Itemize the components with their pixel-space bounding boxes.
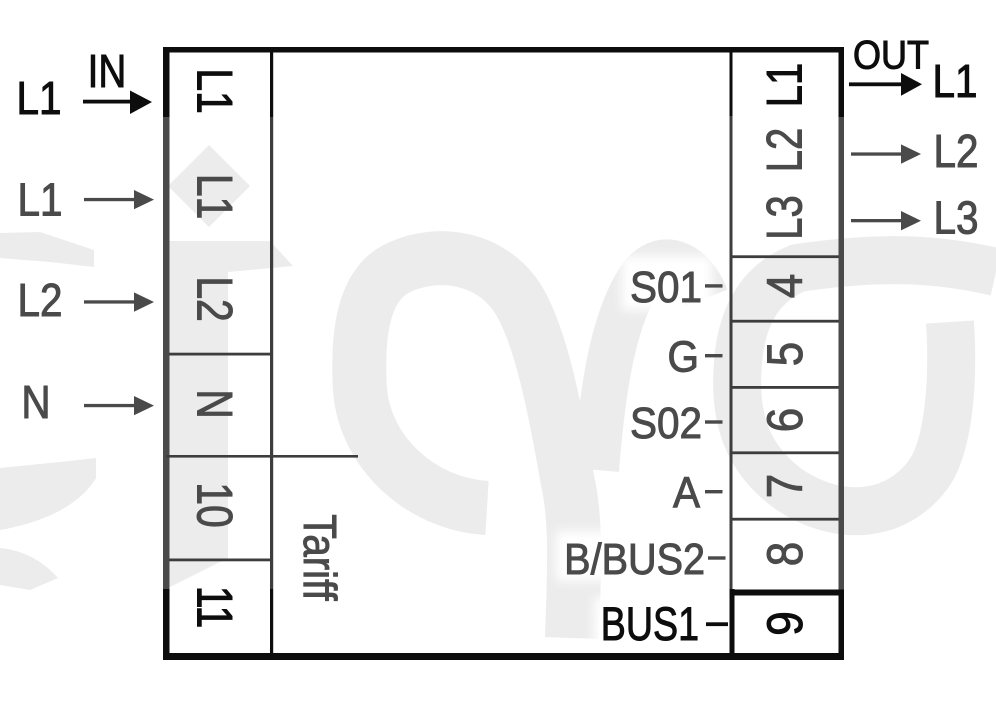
svg-text:A: A: [673, 468, 701, 517]
svg-text:S02: S02: [630, 398, 702, 447]
svg-text:S01: S01: [630, 262, 702, 311]
svg-text:L3: L3: [933, 193, 978, 244]
svg-text:IN: IN: [88, 46, 127, 97]
svg-text:B/BUS2: B/BUS2: [564, 534, 705, 583]
svg-text:L1: L1: [932, 57, 977, 108]
svg-text:L2: L2: [187, 276, 243, 322]
svg-text:OUT: OUT: [853, 34, 929, 78]
svg-text:L1: L1: [16, 74, 61, 125]
svg-text:L1: L1: [187, 174, 243, 220]
svg-text:11: 11: [187, 586, 243, 629]
svg-text:L1: L1: [17, 175, 62, 226]
svg-text:5: 5: [756, 342, 812, 366]
svg-text:L1: L1: [756, 63, 812, 107]
svg-text:G: G: [668, 332, 699, 381]
svg-text:L1: L1: [187, 68, 243, 114]
svg-text:6: 6: [756, 408, 812, 432]
svg-text:N: N: [21, 378, 50, 429]
svg-text:7: 7: [756, 474, 812, 498]
svg-text:L2: L2: [933, 127, 978, 178]
svg-text:8: 8: [756, 542, 812, 566]
svg-text:Tariff: Tariff: [293, 514, 344, 601]
svg-text:10: 10: [187, 482, 243, 528]
svg-text:9: 9: [756, 611, 812, 635]
svg-text:N: N: [187, 389, 243, 419]
svg-text:L3: L3: [756, 195, 812, 239]
svg-text:L2: L2: [17, 276, 62, 327]
svg-text:BUS1: BUS1: [601, 598, 699, 651]
svg-text:L2: L2: [756, 128, 812, 172]
svg-text:4: 4: [756, 274, 812, 298]
